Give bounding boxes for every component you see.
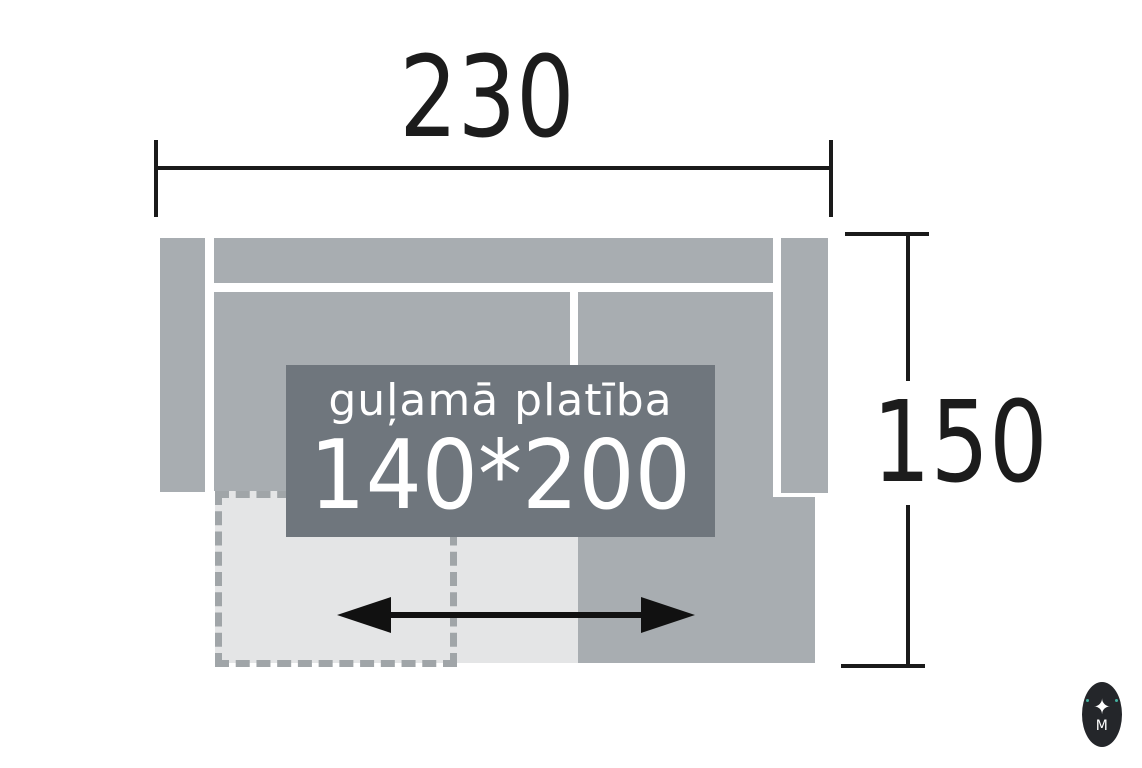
- sofa-left-armrest: [160, 238, 205, 492]
- depth-dimension-value: 150: [872, 387, 1047, 499]
- width-dimension-right-tick: [829, 140, 833, 217]
- slide-arrow-left-head: [337, 597, 391, 633]
- depth-dimension-top-tick: [845, 232, 929, 236]
- sleeping-area-title: guļamā platība: [328, 376, 672, 426]
- logo-monogram: M: [1096, 719, 1109, 733]
- width-dimension-label: 230: [337, 42, 637, 154]
- sofa-backrest: [214, 238, 773, 283]
- sleeping-area-label-box: guļamā platība 140*200: [286, 365, 715, 537]
- sofa-right-armrest: [781, 238, 828, 493]
- sofa-dimension-diagram: 230 150 guļamā platība 140*200 ✦ M: [0, 0, 1142, 768]
- logo-accent-dot-left: [1086, 699, 1089, 702]
- width-dimension-value: 230: [399, 42, 574, 154]
- width-dimension-line: [156, 166, 833, 170]
- logo-accent-dot-right: [1115, 699, 1118, 702]
- depth-dimension-label: 150: [853, 381, 1067, 505]
- slide-arrow-shaft: [385, 612, 647, 618]
- width-dimension-left-tick: [154, 140, 158, 217]
- slide-arrow-right-head: [641, 597, 695, 633]
- brand-logo: ✦ M: [1082, 682, 1122, 747]
- depth-dimension-bottom-tick: [841, 664, 925, 668]
- star-icon: ✦: [1093, 697, 1111, 718]
- sleeping-area-size: 140*200: [310, 426, 691, 526]
